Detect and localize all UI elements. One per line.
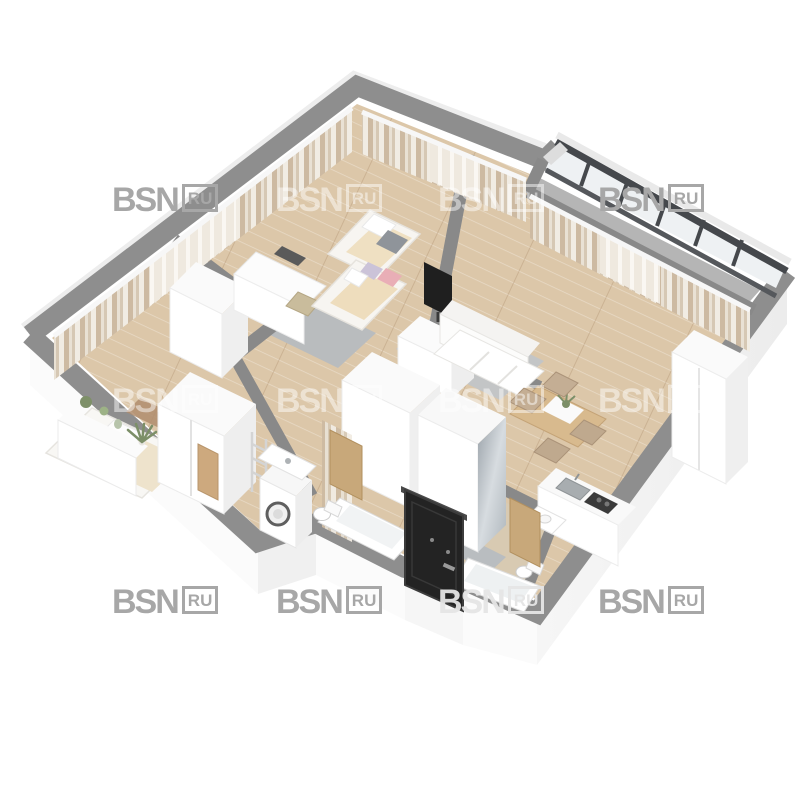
bedroom-door: [198, 444, 218, 500]
floor-plan-stage: BSN RU BSN RU BSN RU BSN RU BSN RU BSN R…: [0, 0, 800, 800]
tall-units: [672, 330, 748, 484]
floor-plan-render: [0, 0, 800, 800]
